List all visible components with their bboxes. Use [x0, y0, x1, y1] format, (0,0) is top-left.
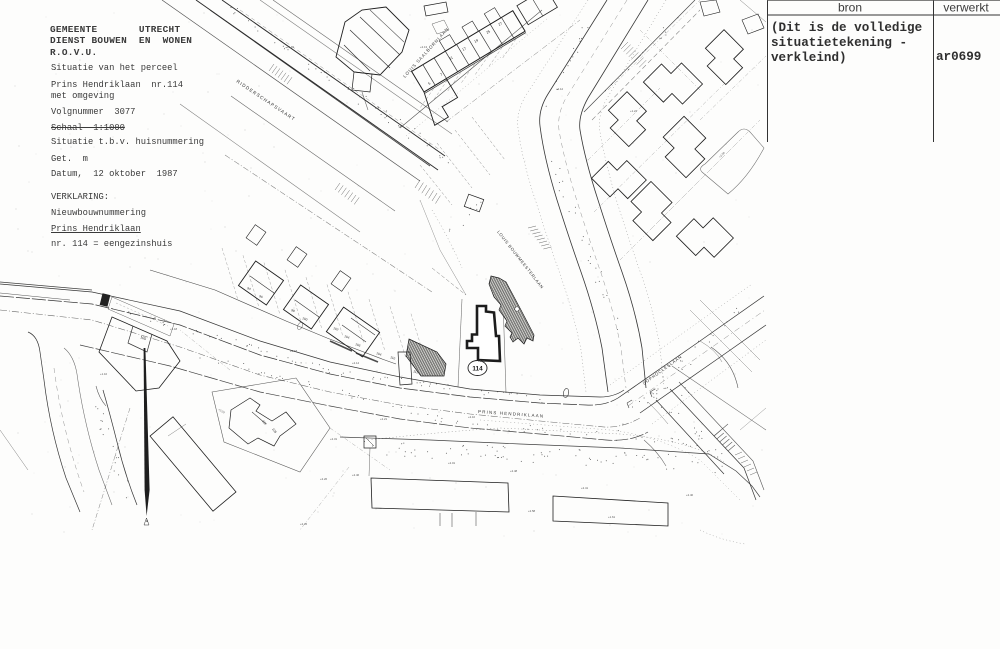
svg-text:PRINS HENDRIKLAAN: PRINS HENDRIKLAAN — [478, 409, 544, 419]
svg-text:5: 5 — [427, 81, 431, 85]
svg-text:+2.46: +2.46 — [352, 473, 360, 477]
svg-text:+2.14: +2.14 — [352, 361, 360, 365]
svg-text:+2.18: +2.18 — [290, 349, 298, 353]
svg-text:11: 11 — [448, 56, 453, 61]
svg-text:104: 104 — [344, 334, 351, 340]
svg-text:SOPHOCLESLAAN: SOPHOCLESLAAN — [642, 354, 683, 386]
svg-text:114: 114 — [472, 366, 483, 373]
svg-text:100: 100 — [302, 316, 309, 322]
svg-text:+2.01: +2.01 — [448, 461, 456, 465]
svg-text:RIDDERSCHAPSVAART: RIDDERSCHAPSVAART — [235, 79, 296, 122]
svg-text:+2.41: +2.41 — [581, 486, 589, 490]
svg-text:+2.48: +2.48 — [510, 469, 518, 473]
svg-text:98: 98 — [291, 308, 296, 313]
svg-text:25: 25 — [485, 29, 490, 34]
svg-text:112: 112 — [413, 369, 419, 375]
svg-text:102: 102 — [333, 326, 340, 332]
svg-text:+2.26: +2.26 — [320, 477, 328, 481]
svg-text:+2.40: +2.40 — [686, 493, 694, 497]
svg-text:105: 105 — [140, 335, 147, 341]
svg-text:+2.12: +2.12 — [556, 87, 564, 91]
svg-text:96: 96 — [259, 294, 264, 299]
svg-text:17: 17 — [461, 46, 466, 51]
svg-text:+2.31: +2.31 — [330, 437, 338, 441]
svg-text:+1.24: +1.24 — [630, 109, 638, 113]
svg-text:+2.09: +2.09 — [718, 151, 726, 159]
svg-text:110: 110 — [390, 355, 396, 361]
svg-text:+2.58: +2.58 — [528, 509, 536, 513]
svg-text:+2.00: +2.00 — [478, 359, 486, 363]
svg-text:109: 109 — [271, 427, 277, 434]
svg-text:+2.10: +2.10 — [468, 415, 476, 419]
svg-text:19: 19 — [473, 38, 478, 43]
svg-text:+2.18: +2.18 — [170, 327, 178, 331]
svg-text:107: 107 — [261, 419, 267, 426]
svg-text:+2.35: +2.35 — [300, 522, 308, 526]
svg-text:94: 94 — [247, 286, 252, 291]
svg-text:104: 104 — [376, 351, 383, 357]
svg-text:27: 27 — [497, 21, 502, 26]
svg-text:+2.21: +2.21 — [380, 417, 388, 421]
svg-text:+1.12: +1.12 — [287, 45, 295, 49]
svg-text:7: 7 — [439, 72, 443, 76]
svg-text:+2.13: +2.13 — [420, 45, 428, 49]
svg-text:106: 106 — [355, 342, 362, 348]
svg-text:+1.10: +1.10 — [100, 372, 108, 376]
svg-text:+2.23: +2.23 — [218, 407, 227, 414]
svg-text:+1.61: +1.61 — [608, 515, 616, 519]
